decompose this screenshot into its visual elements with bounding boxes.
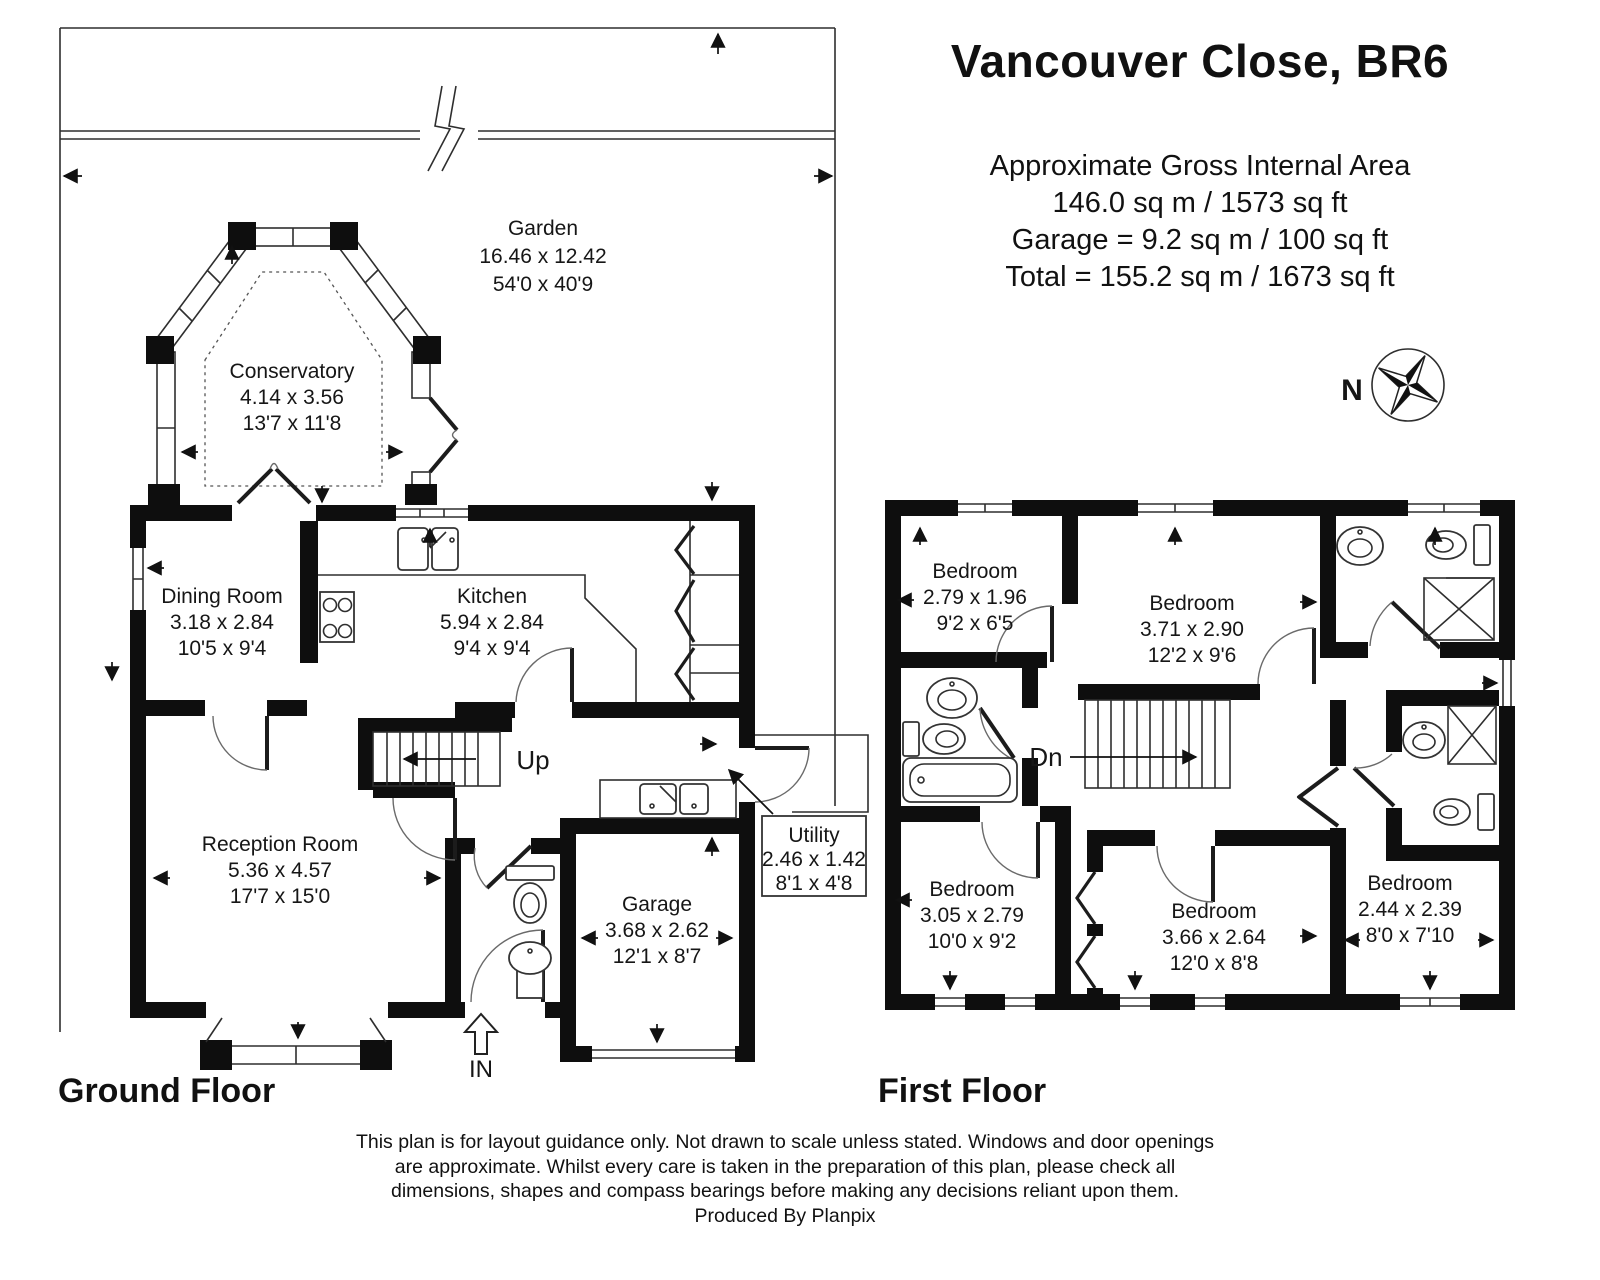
entrance-label: IN bbox=[469, 1056, 493, 1083]
svg-text:10'5 x 9'4: 10'5 x 9'4 bbox=[178, 637, 267, 660]
svg-text:10'0 x 9'2: 10'0 x 9'2 bbox=[928, 930, 1017, 953]
svg-text:Kitchen: Kitchen bbox=[457, 585, 527, 608]
stove-icon bbox=[320, 592, 354, 642]
footer-disclaimer: This plan is for layout guidance only. N… bbox=[250, 1130, 1320, 1228]
room-label-kitchen: Kitchen 5.94 x 2.84 9'4 x 9'4 bbox=[440, 585, 544, 660]
door-utility bbox=[755, 748, 809, 802]
basin-icon bbox=[927, 678, 977, 718]
utility-sink-icon bbox=[600, 780, 736, 818]
compass-north-label: N bbox=[1341, 374, 1363, 407]
svg-text:8'0 x 7'10: 8'0 x 7'10 bbox=[1366, 924, 1455, 947]
compass-icon: N bbox=[1341, 349, 1444, 421]
svg-text:2.46 x 1.42: 2.46 x 1.42 bbox=[762, 848, 866, 871]
basin-icon bbox=[1337, 527, 1383, 565]
first-floor-label: First Floor bbox=[878, 1072, 1046, 1111]
area-line-total: Total = 155.2 sq m / 1673 sq ft bbox=[880, 259, 1520, 296]
room-label-bedroom5: Bedroom 2.44 x 2.39 8'0 x 7'10 bbox=[1358, 872, 1462, 947]
svg-text:17'7 x 15'0: 17'7 x 15'0 bbox=[230, 885, 330, 908]
room-size-metric: 16.46 x 12.42 bbox=[479, 245, 606, 268]
svg-text:Bedroom: Bedroom bbox=[929, 878, 1014, 901]
disclaimer-line: This plan is for layout guidance only. N… bbox=[250, 1130, 1320, 1155]
svg-text:3.18 x 2.84: 3.18 x 2.84 bbox=[170, 611, 274, 634]
svg-text:12'0 x 8'8: 12'0 x 8'8 bbox=[1170, 952, 1259, 975]
room-size-metric: 4.14 x 3.56 bbox=[240, 386, 344, 409]
room-label-bedroom2: Bedroom 3.71 x 2.90 12'2 x 9'6 bbox=[1140, 592, 1244, 667]
stairs-up: Up bbox=[373, 732, 550, 786]
svg-text:3.71 x 2.90: 3.71 x 2.90 bbox=[1140, 618, 1244, 641]
room-name: Garden bbox=[508, 217, 578, 240]
toilet-icon bbox=[1434, 794, 1494, 830]
door-bathroom-left bbox=[980, 708, 1014, 760]
disclaimer-line: are approximate. Whilst every care is ta… bbox=[250, 1155, 1320, 1180]
svg-text:Bedroom: Bedroom bbox=[1149, 592, 1234, 615]
room-size-imperial: 13'7 x 11'8 bbox=[243, 412, 342, 435]
garden-label: Garden 16.46 x 12.42 54'0 x 40'9 bbox=[479, 217, 606, 296]
door-dining-reception bbox=[213, 716, 267, 770]
room-label-dining: Dining Room 3.18 x 2.84 10'5 x 9'4 bbox=[161, 585, 282, 660]
page-title: Vancouver Close, BR6 bbox=[880, 34, 1520, 88]
shower-icon bbox=[1448, 706, 1496, 764]
svg-text:5.36 x 4.57: 5.36 x 4.57 bbox=[228, 859, 332, 882]
room-size-imperial: 54'0 x 40'9 bbox=[493, 273, 593, 296]
disclaimer-line: dimensions, shapes and compass bearings … bbox=[250, 1179, 1320, 1204]
svg-text:2.79 x 1.96: 2.79 x 1.96 bbox=[923, 586, 1027, 609]
door-bedroom2 bbox=[1258, 628, 1314, 684]
entrance-arrow-icon: IN bbox=[465, 1014, 497, 1083]
credit-line: Produced By Planpix bbox=[250, 1204, 1320, 1229]
svg-text:5.94 x 2.84: 5.94 x 2.84 bbox=[440, 611, 544, 634]
svg-text:3.68 x 2.62: 3.68 x 2.62 bbox=[605, 919, 709, 942]
conservatory-label: Conservatory 4.14 x 3.56 13'7 x 11'8 bbox=[230, 360, 355, 435]
svg-text:12'2 x 9'6: 12'2 x 9'6 bbox=[1148, 644, 1237, 667]
fence-break-icon bbox=[428, 86, 450, 171]
stairs-down-label: Dn bbox=[1029, 742, 1062, 772]
ground-floor-label: Ground Floor bbox=[58, 1072, 275, 1111]
svg-text:2.44 x 2.39: 2.44 x 2.39 bbox=[1358, 898, 1462, 921]
stairs-down: Dn bbox=[1029, 700, 1230, 788]
door-bedroom3 bbox=[982, 822, 1038, 878]
double-door-icon bbox=[238, 464, 310, 504]
room-label-reception: Reception Room 5.36 x 4.57 17'7 x 15'0 bbox=[202, 833, 358, 908]
svg-text:Bedroom: Bedroom bbox=[1171, 900, 1256, 923]
room-label-bedroom4: Bedroom 3.66 x 2.64 12'0 x 8'8 bbox=[1162, 900, 1266, 975]
room-label-bedroom1: Bedroom 2.79 x 1.96 9'2 x 6'5 bbox=[923, 560, 1027, 635]
area-line-garage: Garage = 9.2 sq m / 100 sq ft bbox=[880, 222, 1520, 259]
stairs-up-label: Up bbox=[516, 745, 549, 775]
kitchen-sink-icon bbox=[398, 528, 458, 570]
svg-text:12'1 x 8'7: 12'1 x 8'7 bbox=[613, 945, 702, 968]
room-label-garage: Garage 3.68 x 2.62 12'1 x 8'7 bbox=[605, 893, 709, 968]
svg-text:Dining Room: Dining Room bbox=[161, 585, 282, 608]
door-ensuite bbox=[1354, 754, 1394, 806]
title-block: Vancouver Close, BR6 bbox=[880, 34, 1520, 88]
door-bathroom-top bbox=[1370, 602, 1440, 648]
svg-text:Utility: Utility bbox=[788, 824, 840, 847]
svg-text:3.05 x 2.79: 3.05 x 2.79 bbox=[920, 904, 1024, 927]
svg-text:Bedroom: Bedroom bbox=[1367, 872, 1452, 895]
room-label-bedroom3: Bedroom 3.05 x 2.79 10'0 x 9'2 bbox=[920, 878, 1024, 953]
room-name: Conservatory bbox=[230, 360, 355, 383]
svg-text:8'1 x 4'8: 8'1 x 4'8 bbox=[776, 872, 853, 895]
shower-icon bbox=[1424, 578, 1494, 640]
bay-window-icon bbox=[200, 1018, 392, 1070]
bathtub-icon bbox=[903, 758, 1017, 802]
svg-text:9'4 x 9'4: 9'4 x 9'4 bbox=[454, 637, 531, 660]
door-bedroom4 bbox=[1157, 846, 1213, 902]
ground-floor-plan: Up bbox=[112, 464, 868, 1084]
basin-icon bbox=[1403, 722, 1445, 758]
svg-text:9'2 x 6'5: 9'2 x 6'5 bbox=[937, 612, 1014, 635]
svg-text:Garage: Garage bbox=[622, 893, 692, 916]
svg-text:3.66 x 2.64: 3.66 x 2.64 bbox=[1162, 926, 1266, 949]
svg-text:Reception Room: Reception Room bbox=[202, 833, 358, 856]
svg-text:Bedroom: Bedroom bbox=[932, 560, 1017, 583]
toilet-icon bbox=[903, 722, 965, 756]
cupboards-icon bbox=[676, 521, 739, 702]
area-line-gia: 146.0 sq m / 1573 sq ft bbox=[880, 185, 1520, 222]
toilet-icon bbox=[506, 866, 554, 923]
french-doors-icon bbox=[430, 398, 457, 472]
area-summary: Approximate Gross Internal Area 146.0 sq… bbox=[880, 148, 1520, 296]
area-heading: Approximate Gross Internal Area bbox=[880, 148, 1520, 185]
floorplan-page: Garden 16.46 x 12.42 54'0 x 40'9 bbox=[0, 0, 1600, 1280]
